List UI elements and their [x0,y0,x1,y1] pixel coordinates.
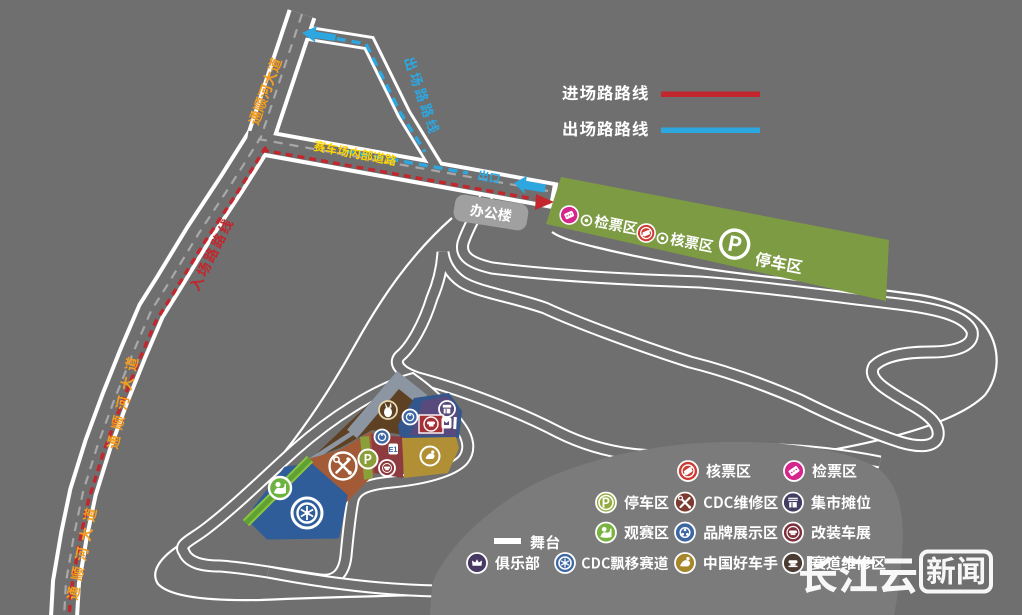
svg-text:舞台: 舞台 [530,532,560,553]
svg-text:中国好车手: 中国好车手 [703,553,778,574]
svg-text:改装车展: 改装车展 [811,522,871,543]
svg-text:E1: E1 [388,444,397,455]
svg-text:CDC飘移赛道: CDC飘移赛道 [581,553,669,574]
svg-text:长江云: 长江云 [798,544,918,602]
svg-text:出场路路线: 出场路路线 [562,116,650,140]
svg-text:品牌展示区: 品牌展示区 [703,522,778,543]
svg-text:检票区: 检票区 [812,461,857,482]
svg-text:俱乐部: 俱乐部 [495,553,541,574]
svg-text:进场路路线: 进场路路线 [562,80,650,104]
svg-text:P: P [602,492,611,511]
svg-text:新闻: 新闻 [926,547,986,591]
svg-text:观赛区: 观赛区 [623,522,669,543]
svg-text:CDC维修区: CDC维修区 [703,492,778,513]
svg-text:集市摊位: 集市摊位 [810,492,871,513]
svg-text:停车区: 停车区 [624,492,669,513]
svg-text:P: P [364,449,373,468]
svg-text:核票区: 核票区 [705,461,751,482]
